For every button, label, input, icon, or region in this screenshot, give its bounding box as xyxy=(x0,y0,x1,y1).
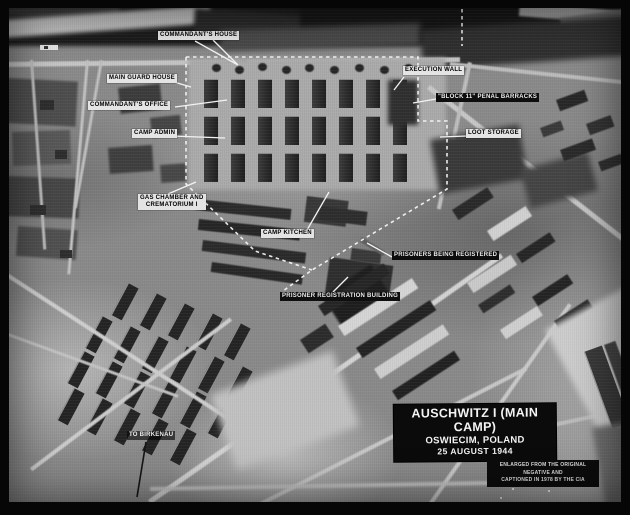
aerial-photograph: COMMANDANT'S HOUSE MAIN GUARD HOUSE COMM… xyxy=(9,8,621,502)
label-loot-storage: LOOT STORAGE xyxy=(466,129,521,138)
label-camp-admin: CAMP ADMIN xyxy=(132,129,177,138)
barracks-building xyxy=(285,153,299,182)
label-prisoner-registration-building: PRISONER REGISTRATION BUILDING xyxy=(280,292,400,301)
tree xyxy=(235,66,244,74)
title-block: AUSCHWITZ I (MAIN CAMP) OSWIECIM, POLAND… xyxy=(394,403,556,461)
tree xyxy=(380,66,389,74)
label-main-guard-house: MAIN GUARD HOUSE xyxy=(107,74,177,83)
barracks-building xyxy=(258,79,272,108)
barracks-building xyxy=(366,116,380,145)
label-block-11-penal-barracks: "BLOCK 11" PENAL BARRACKS xyxy=(436,93,539,102)
barracks-building xyxy=(231,116,245,145)
barracks-building xyxy=(231,153,245,182)
barracks-building xyxy=(231,79,245,108)
speck xyxy=(548,490,550,492)
tree xyxy=(355,64,364,72)
terrain-feature xyxy=(55,150,67,159)
terrain-feature xyxy=(40,100,54,110)
label-gas-chamber-line1: GAS CHAMBER AND xyxy=(140,195,204,202)
barracks-building xyxy=(339,79,353,108)
terrain-feature xyxy=(60,250,72,258)
tree xyxy=(330,66,339,74)
speck xyxy=(500,497,502,499)
label-gas-chamber-crematorium: GAS CHAMBER AND CREMATORIUM I xyxy=(138,194,206,210)
barracks-building xyxy=(312,153,326,182)
label-camp-kitchen: CAMP KITCHEN xyxy=(261,229,314,238)
tree xyxy=(212,64,221,72)
barracks-building xyxy=(204,79,218,108)
tree xyxy=(282,66,291,74)
label-gas-chamber-line2: CREMATORIUM I xyxy=(140,202,204,209)
photo-frame: COMMANDANT'S HOUSE MAIN GUARD HOUSE COMM… xyxy=(0,0,630,515)
barracks-building xyxy=(258,116,272,145)
title-camp-name: AUSCHWITZ I (MAIN CAMP) xyxy=(396,406,554,435)
terrain-feature xyxy=(44,46,48,49)
terrain-feature xyxy=(30,205,46,215)
tree xyxy=(258,63,267,71)
barracks-building xyxy=(204,153,218,182)
barracks-building xyxy=(312,79,326,108)
label-commandants-house: COMMANDANT'S HOUSE xyxy=(158,31,239,40)
tree xyxy=(305,64,314,72)
speck xyxy=(512,488,514,490)
barracks-building xyxy=(339,153,353,182)
label-prisoners-being-registered: PRISONERS BEING REGISTERED xyxy=(392,251,499,260)
barracks-building xyxy=(393,153,407,182)
barracks-building xyxy=(339,116,353,145)
barracks-building xyxy=(366,79,380,108)
label-to-birkenau: TO BIRKENAU xyxy=(127,431,175,440)
credit-block: ENLARGED FROM THE ORIGINAL NEGATIVE AND … xyxy=(487,460,599,487)
barracks-building xyxy=(285,79,299,108)
label-execution-wall: EXECUTION WALL xyxy=(403,66,464,75)
label-commandants-office: COMMANDANT'S OFFICE xyxy=(88,101,170,110)
terrain-feature xyxy=(388,80,418,125)
barracks-building xyxy=(366,153,380,182)
credit-line2: CAPTIONED IN 1978 BY THE CIA xyxy=(488,477,598,485)
barracks-building xyxy=(312,116,326,145)
title-date: 25 AUGUST 1944 xyxy=(396,445,554,457)
barracks-building xyxy=(204,116,218,145)
terrain-feature xyxy=(12,130,71,166)
barracks-building xyxy=(285,116,299,145)
photo-mark xyxy=(40,45,58,50)
terrain-feature xyxy=(108,145,154,174)
barracks-building xyxy=(258,153,272,182)
terrain-feature xyxy=(160,163,187,183)
credit-line1: ENLARGED FROM THE ORIGINAL NEGATIVE AND xyxy=(488,462,598,477)
